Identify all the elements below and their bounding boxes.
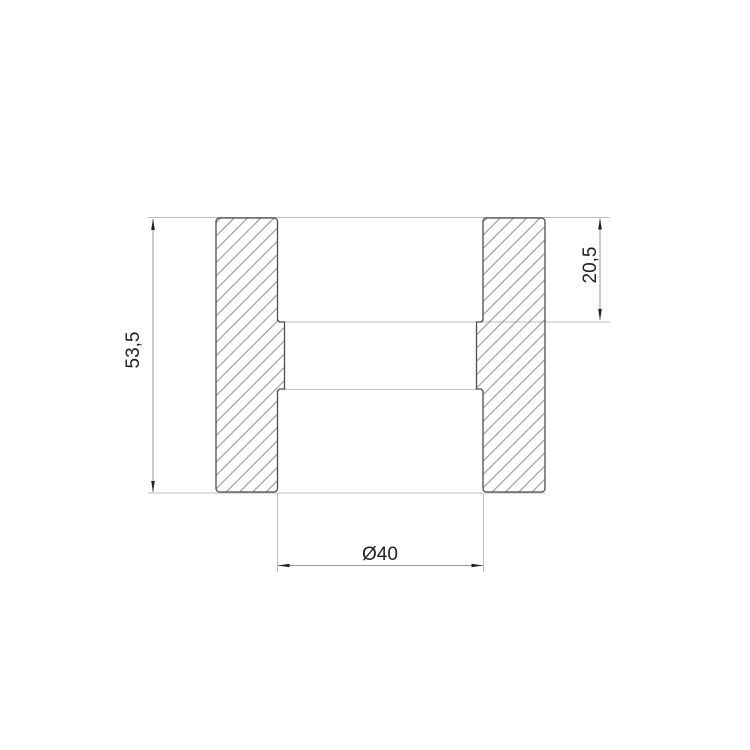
arrow-up-icon bbox=[598, 218, 602, 230]
dimension-bore-diameter: Ø40 bbox=[278, 544, 483, 567]
dimension-socket-depth: 20,5 bbox=[580, 218, 602, 321]
arrow-down-icon bbox=[598, 309, 602, 321]
part-outline bbox=[216, 218, 545, 492]
dimension-label-height: 53,5 bbox=[123, 332, 144, 369]
dimension-label-bore-diameter: Ø40 bbox=[362, 544, 398, 565]
arrow-up-icon bbox=[151, 219, 155, 231]
drawing-canvas: 53,5 20,5 Ø40 bbox=[0, 0, 750, 750]
right-wall-section bbox=[477, 218, 546, 492]
arrow-right-icon bbox=[472, 564, 484, 568]
arrow-left-icon bbox=[278, 564, 290, 568]
arrow-down-icon bbox=[151, 481, 155, 493]
left-wall-section bbox=[216, 218, 285, 492]
dimension-height: 53,5 bbox=[123, 219, 155, 493]
dimension-label-socket-depth: 20,5 bbox=[580, 247, 601, 284]
technical-drawing: 53,5 20,5 Ø40 bbox=[0, 0, 750, 750]
